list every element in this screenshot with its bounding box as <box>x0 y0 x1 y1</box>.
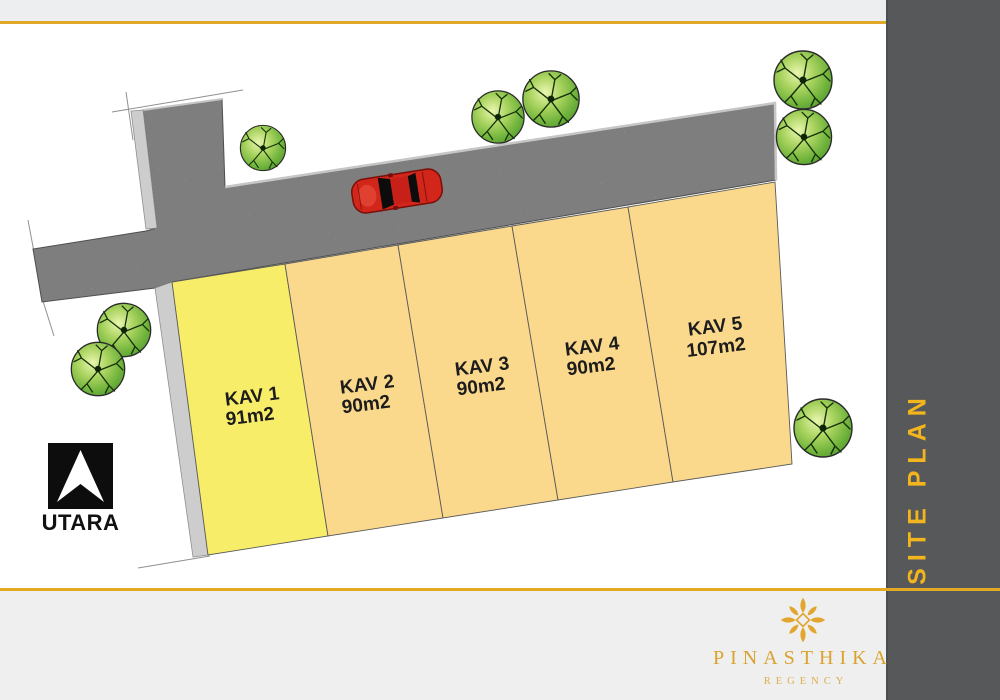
top-strip <box>0 0 886 21</box>
sidebar: SITEPLAN <box>886 0 1000 700</box>
bottom-accent-line <box>0 588 1000 591</box>
north-indicator: UTARA <box>42 443 120 535</box>
tree <box>71 342 124 395</box>
north-label: UTARA <box>42 510 120 535</box>
tree <box>776 109 831 164</box>
sidebar-title-word2: PLAN <box>904 391 932 487</box>
tree <box>523 71 579 127</box>
tree <box>794 399 852 457</box>
sidebar-title: SITEPLAN <box>904 391 933 585</box>
top-accent-line <box>0 21 886 24</box>
tree <box>774 51 832 109</box>
brand-name: PINASTHIKA <box>713 647 893 670</box>
brand-logo-icon <box>779 596 827 644</box>
tree <box>472 91 524 143</box>
tree <box>240 125 285 170</box>
sidebar-title-word1: SITE <box>904 501 932 585</box>
brand-subtitle: REGENCY <box>764 676 849 687</box>
footer: PINASTHIKA REGENCY <box>0 591 886 700</box>
